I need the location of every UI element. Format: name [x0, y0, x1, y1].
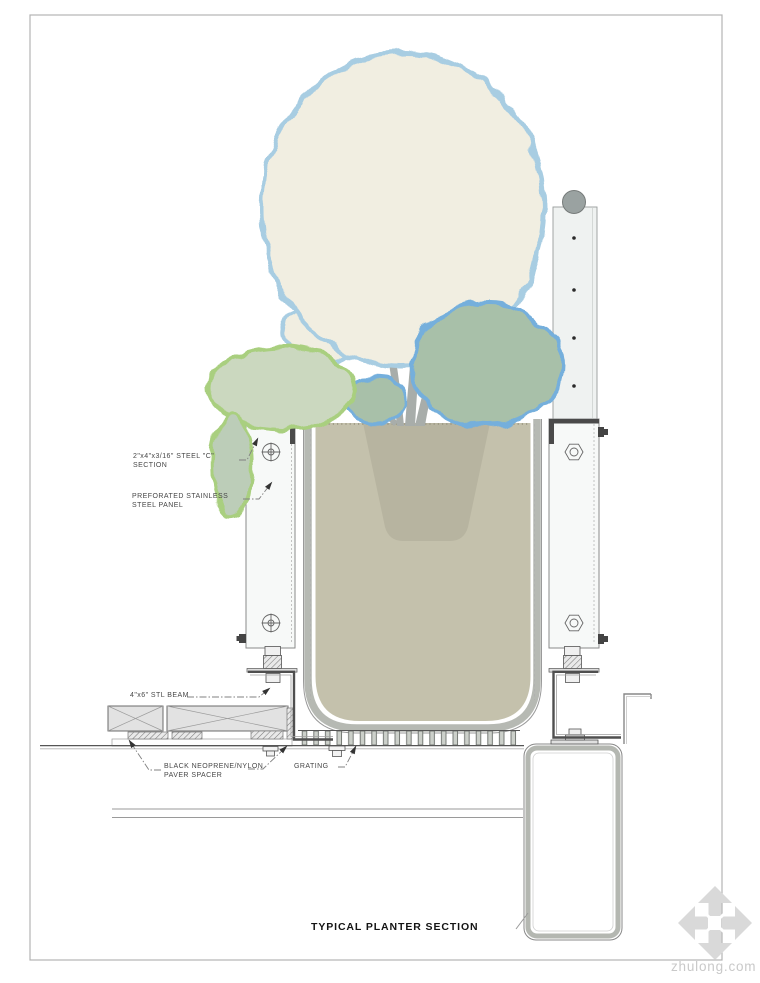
structure-lines: [40, 746, 528, 929]
threaded-rod: [564, 656, 582, 669]
grating: [298, 731, 520, 746]
label-steel-beam: 4"x6" STL BEAM: [130, 691, 189, 700]
shrub-right: [412, 304, 562, 426]
watermark-logo: [678, 886, 752, 960]
edge-flashing: [624, 694, 651, 744]
drawing-title: TYPICAL PLANTER SECTION: [311, 921, 479, 933]
planter-body: [304, 419, 542, 733]
watermark-text: zhulong.com: [671, 959, 756, 974]
label-steel-c-section: 2"x4"x3/16" STEEL "C" SECTION: [133, 452, 214, 470]
label-grating: GRATING: [294, 762, 329, 771]
planter-section-drawing: 2"x4"x3/16" STEEL "C" SECTION PREFORATED…: [0, 0, 760, 983]
anchor-bolt: [329, 746, 345, 751]
label-paver-spacer: BLACK NEOPRENE/NYLON PAVER SPACER: [164, 762, 263, 780]
bolt-left-bottom: [239, 634, 246, 643]
steel-c-support: [554, 672, 622, 738]
hanger-bracket-right: [549, 647, 621, 738]
bolt-right-top: [598, 427, 604, 437]
drawing-canvas: [0, 0, 760, 983]
c-channel-right: [549, 419, 599, 424]
right-stainless-panel: [549, 419, 608, 648]
bolt-right-bottom: [598, 634, 604, 644]
handrail-cap: [563, 191, 586, 214]
threaded-rod: [264, 656, 282, 669]
steel-tube-beam: [524, 694, 651, 940]
anchor-bolt: [263, 747, 278, 752]
leader-beam: [187, 688, 270, 697]
paver-assembly: [108, 706, 293, 746]
label-stainless-panel: PREFORATED STAINLESS STEEL PANEL: [132, 492, 228, 510]
